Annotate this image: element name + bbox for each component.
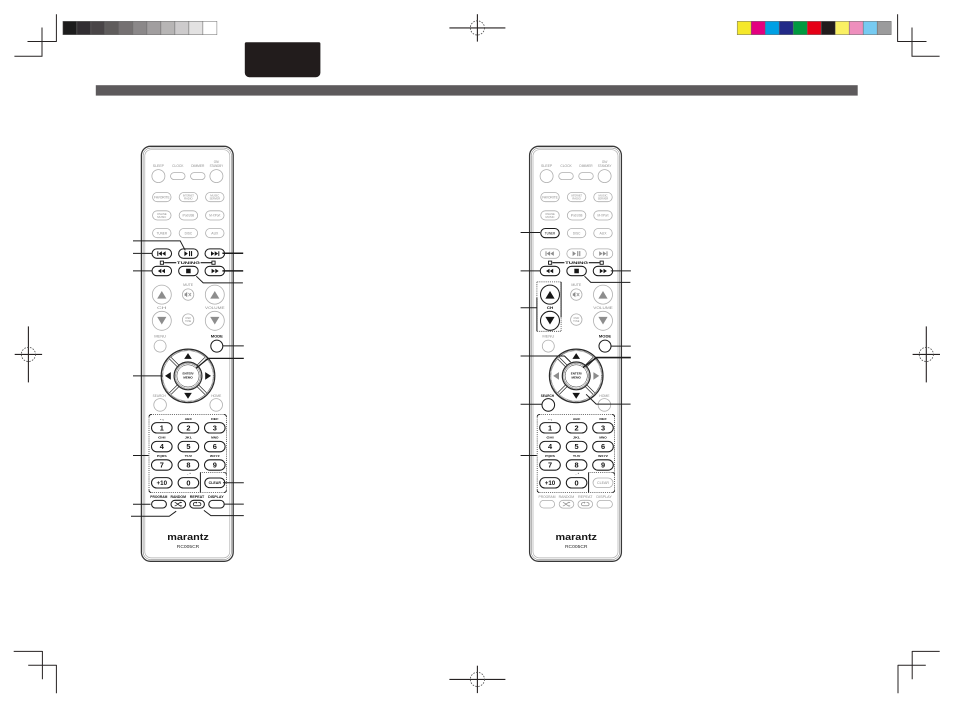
svg-text:-: - (187, 472, 188, 476)
svg-text:DEF: DEF (211, 417, 219, 421)
svg-text:2: 2 (186, 423, 190, 432)
svg-text:marantz: marantz (555, 532, 597, 543)
svg-text:RANDOM: RANDOM (170, 495, 186, 499)
svg-text:DISC: DISC (573, 231, 581, 235)
svg-text:CH: CH (547, 306, 554, 310)
svg-text:REPEAT: REPEAT (190, 495, 204, 499)
svg-text:SEARCH: SEARCH (153, 394, 167, 398)
svg-text:9: 9 (213, 461, 217, 470)
svg-text:0: 0 (575, 478, 579, 487)
svg-text:MENU: MENU (542, 335, 554, 339)
svg-text:7: 7 (160, 461, 164, 470)
svg-text:1: 1 (548, 423, 552, 432)
svg-text:ENTER/: ENTER/ (182, 372, 193, 376)
svg-text:VOLUME: VOLUME (593, 306, 614, 310)
svg-text:ABC: ABC (185, 417, 193, 421)
svg-text:WXYZ: WXYZ (598, 454, 608, 458)
svg-text:CH: CH (157, 306, 168, 310)
svg-text:MNO: MNO (599, 436, 607, 440)
svg-text:8: 8 (575, 461, 579, 470)
svg-text:DIMMER: DIMMER (579, 164, 593, 168)
svg-text:8: 8 (186, 461, 190, 470)
svg-text:STANDBY: STANDBY (210, 164, 224, 168)
svg-text:+10: +10 (157, 480, 168, 487)
svg-text:HOME: HOME (211, 394, 222, 398)
svg-text:VOLUME: VOLUME (205, 306, 226, 310)
svg-text:PQRS: PQRS (157, 454, 167, 458)
svg-text:MODE: MODE (599, 335, 612, 339)
svg-text:+10: +10 (545, 480, 556, 487)
svg-text:3: 3 (213, 423, 217, 432)
svg-text:GHI: GHI (158, 436, 166, 440)
svg-text:ON/: ON/ (214, 160, 220, 164)
svg-text:DISPLAY: DISPLAY (208, 495, 224, 499)
svg-text:TUNING: TUNING (177, 260, 200, 265)
svg-text:JKL: JKL (185, 436, 193, 440)
svg-text:MEMO: MEMO (572, 376, 582, 380)
svg-text:-: - (576, 472, 577, 476)
svg-text:.,: ., (548, 417, 553, 421)
svg-text:6: 6 (213, 442, 217, 451)
svg-text:JKL: JKL (573, 436, 581, 440)
svg-text:2: 2 (575, 423, 579, 432)
svg-text:OSD/: OSD/ (185, 317, 191, 320)
svg-text:OSD/: OSD/ (574, 317, 580, 320)
svg-text:RANDOM: RANDOM (559, 495, 575, 499)
svg-text:ON/: ON/ (602, 160, 608, 164)
svg-text:MNO: MNO (211, 436, 219, 440)
svg-text:MEMO: MEMO (183, 376, 193, 380)
svg-text:0: 0 (186, 478, 190, 487)
svg-text:5: 5 (575, 442, 579, 451)
svg-text:MUTE: MUTE (571, 283, 581, 287)
svg-text:TUNING: TUNING (565, 260, 588, 265)
svg-text:FAVORITE: FAVORITE (542, 195, 558, 199)
svg-text:MUTE: MUTE (183, 283, 193, 287)
svg-text:1: 1 (160, 423, 164, 432)
svg-text:DISPLAY: DISPLAY (596, 495, 612, 499)
svg-text:AUX: AUX (211, 231, 219, 235)
svg-text:PROGRAM: PROGRAM (539, 495, 556, 499)
svg-text:HOME: HOME (599, 394, 610, 398)
svg-text:MENU: MENU (154, 335, 166, 339)
svg-text:ENTER/: ENTER/ (571, 372, 582, 376)
svg-text:RC005CR: RC005CR (177, 544, 200, 549)
svg-text:marantz: marantz (167, 532, 209, 543)
svg-text:REPEAT: REPEAT (578, 495, 592, 499)
svg-text:DIMMER: DIMMER (191, 164, 205, 168)
svg-text:9: 9 (601, 461, 605, 470)
svg-text:PQRS: PQRS (545, 454, 555, 458)
svg-text:7: 7 (548, 461, 552, 470)
svg-text:FAVORITE: FAVORITE (154, 195, 170, 199)
svg-text:STANDBY: STANDBY (598, 164, 612, 168)
svg-text:CLOCK: CLOCK (172, 164, 184, 168)
svg-text:SLEEP: SLEEP (541, 164, 552, 168)
svg-text:ABC: ABC (573, 417, 581, 421)
svg-text:WXYZ: WXYZ (210, 454, 220, 458)
svg-text:DEF: DEF (599, 417, 607, 421)
svg-text:AUX: AUX (600, 231, 608, 235)
svg-text:5: 5 (186, 442, 190, 451)
svg-text:6: 6 (601, 442, 605, 451)
svg-text:CLOCK: CLOCK (560, 164, 572, 168)
svg-text:PROGRAM: PROGRAM (150, 495, 167, 499)
svg-text:TUV: TUV (573, 454, 580, 458)
svg-text:RC005CR: RC005CR (565, 544, 588, 549)
svg-text:SEARCH: SEARCH (541, 394, 555, 398)
svg-text:TUV: TUV (185, 454, 192, 458)
svg-text:MODE: MODE (211, 335, 224, 339)
svg-text:CLEAR: CLEAR (209, 481, 222, 485)
svg-text:M-XPort: M-XPort (209, 214, 220, 218)
svg-text:M-XPort: M-XPort (598, 214, 609, 218)
svg-text:.,: ., (159, 417, 164, 421)
svg-text:GHI: GHI (546, 436, 554, 440)
svg-text:TONE: TONE (573, 320, 579, 323)
svg-text:SLEEP: SLEEP (153, 164, 164, 168)
svg-text:DISC: DISC (185, 231, 193, 235)
svg-text:TUNER: TUNER (545, 231, 556, 235)
svg-text:TONE: TONE (185, 320, 191, 323)
svg-text:3: 3 (601, 423, 605, 432)
svg-text:CLEAR: CLEAR (597, 481, 609, 485)
svg-text:TUNER: TUNER (157, 231, 168, 235)
svg-text:iPod/USB: iPod/USB (183, 214, 195, 218)
svg-text:iPod/USB: iPod/USB (571, 214, 583, 218)
